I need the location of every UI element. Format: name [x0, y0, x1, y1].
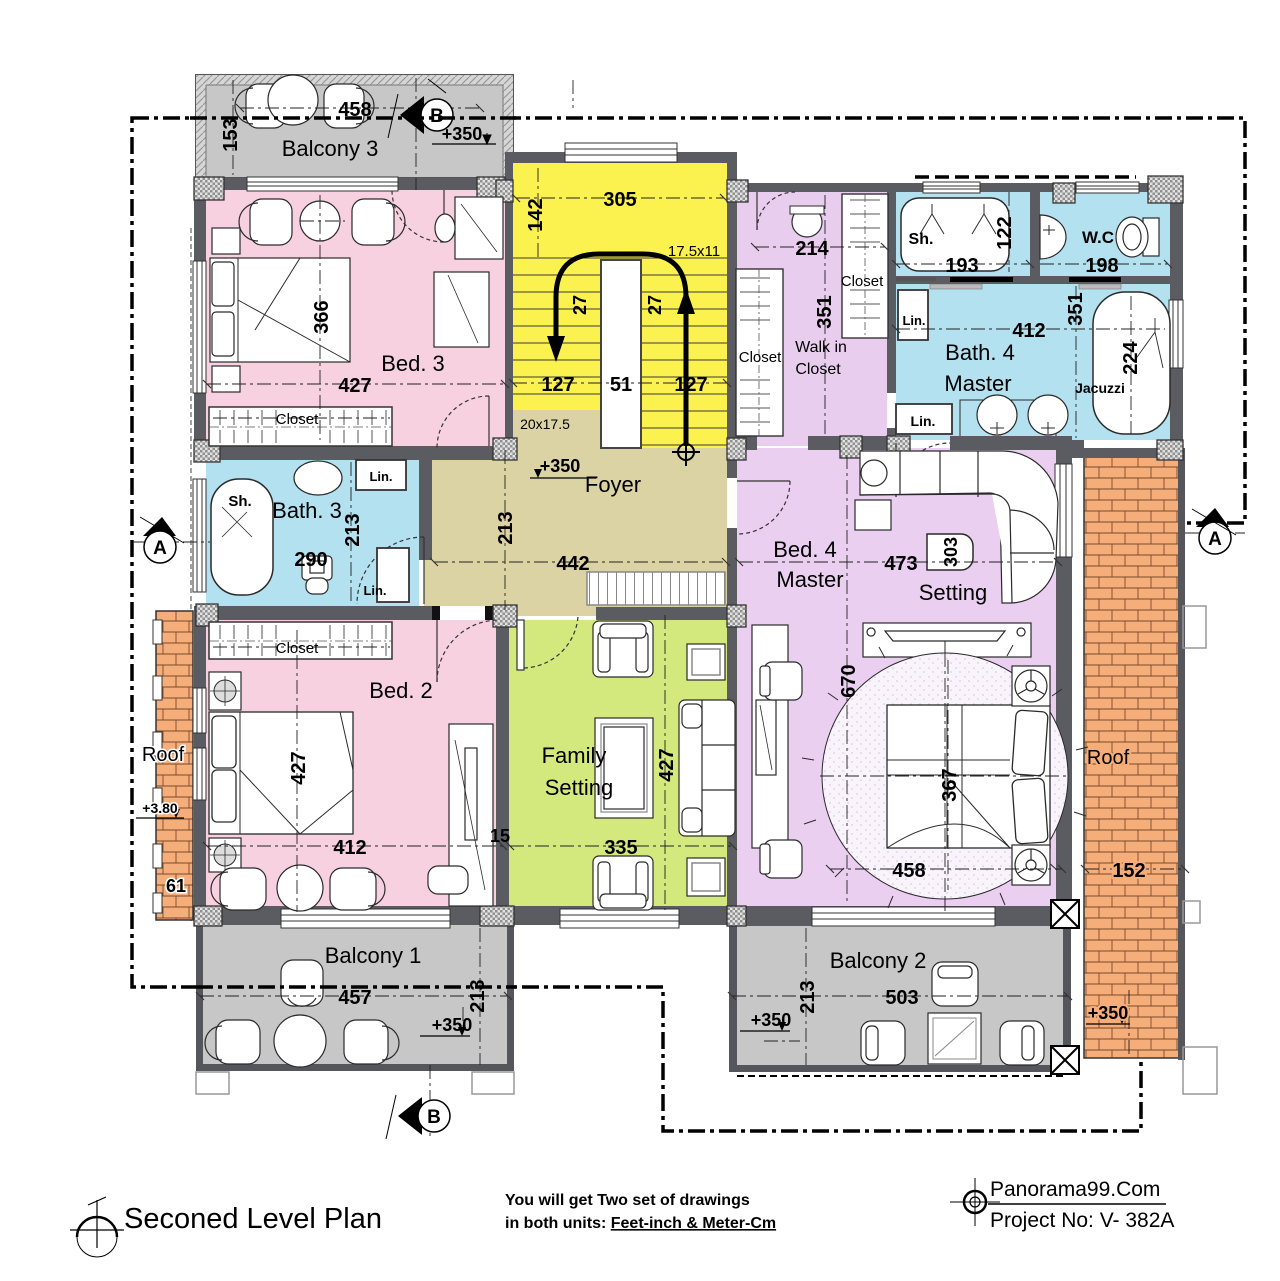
svg-text:Bath. 4: Bath. 4: [945, 340, 1015, 365]
svg-text:Lin.: Lin.: [911, 413, 936, 429]
svg-text:Closet: Closet: [739, 349, 782, 366]
svg-text:127: 127: [674, 374, 707, 396]
svg-text:152: 152: [1112, 860, 1145, 882]
svg-text:Sh.: Sh.: [909, 231, 934, 248]
svg-text:Balcony 2: Balcony 2: [830, 948, 927, 973]
svg-text:213: 213: [495, 511, 517, 544]
svg-text:20x17.5: 20x17.5: [520, 416, 570, 432]
svg-text:+350: +350: [442, 124, 483, 144]
svg-text:503: 503: [885, 987, 918, 1009]
svg-text:Balcony 3: Balcony 3: [282, 136, 379, 161]
svg-text:Project No: V- 382A: Project No: V- 382A: [990, 1209, 1174, 1232]
svg-text:You will get Two set of drawin: You will get Two set of drawings: [505, 1192, 750, 1209]
svg-text:224: 224: [1120, 340, 1142, 374]
svg-text:367: 367: [939, 768, 961, 801]
svg-text:Balcony 1: Balcony 1: [325, 943, 422, 968]
svg-text:+350: +350: [432, 1015, 473, 1035]
svg-text:193: 193: [945, 255, 978, 277]
svg-text:457: 457: [338, 987, 371, 1009]
svg-text:351: 351: [814, 295, 836, 328]
svg-text:Seconed Level Plan: Seconed Level Plan: [124, 1203, 382, 1235]
svg-text:412: 412: [1012, 320, 1045, 342]
svg-text:+350: +350: [751, 1010, 792, 1030]
svg-text:Lin.: Lin.: [363, 583, 386, 598]
svg-text:335: 335: [604, 837, 637, 859]
svg-text:142: 142: [525, 198, 547, 231]
svg-text:670: 670: [838, 664, 860, 697]
svg-text:303: 303: [941, 537, 961, 567]
svg-text:A: A: [1208, 529, 1222, 550]
svg-text:51: 51: [610, 374, 632, 396]
svg-text:351: 351: [1065, 292, 1087, 325]
svg-text:W.C: W.C: [1082, 228, 1114, 247]
svg-text:Master: Master: [776, 567, 843, 592]
svg-text:A: A: [153, 538, 167, 559]
svg-text:214: 214: [795, 238, 829, 260]
svg-text:in both units: Feet-inch & Met: in both units: Feet-inch & Meter-Cm: [505, 1215, 776, 1232]
svg-text:+3.80: +3.80: [142, 800, 178, 816]
svg-text:27: 27: [570, 295, 590, 315]
svg-text:+350: +350: [540, 456, 581, 476]
svg-text:213: 213: [467, 979, 489, 1012]
svg-text:Closet: Closet: [841, 273, 884, 290]
svg-text:Bed. 2: Bed. 2: [369, 678, 433, 703]
svg-text:+350: +350: [1088, 1003, 1129, 1023]
svg-text:198: 198: [1085, 255, 1118, 277]
svg-text:213: 213: [342, 513, 364, 546]
svg-text:366: 366: [311, 300, 333, 333]
svg-text:122: 122: [994, 216, 1016, 249]
svg-text:153: 153: [220, 118, 242, 151]
svg-text:Closet: Closet: [276, 411, 319, 428]
svg-text:Lin.: Lin.: [369, 469, 392, 484]
svg-text:15: 15: [490, 826, 510, 846]
svg-text:Family: Family: [542, 743, 607, 768]
svg-text:Jacuzzi: Jacuzzi: [1075, 380, 1125, 396]
svg-text:27: 27: [645, 295, 665, 315]
svg-text:290: 290: [294, 549, 327, 571]
svg-text:61: 61: [166, 876, 186, 896]
svg-text:Roof: Roof: [142, 744, 185, 766]
svg-text:B: B: [427, 1107, 441, 1128]
svg-text:Closet: Closet: [795, 361, 841, 378]
svg-text:Walk in: Walk in: [795, 339, 847, 356]
svg-text:Lin.: Lin.: [902, 313, 925, 328]
svg-text:427: 427: [288, 751, 310, 784]
svg-text:127: 127: [541, 374, 574, 396]
svg-text:Master: Master: [944, 371, 1011, 396]
svg-text:473: 473: [884, 553, 917, 575]
svg-text:Setting: Setting: [545, 775, 614, 800]
svg-text:Sh.: Sh.: [228, 493, 251, 510]
svg-text:412: 412: [333, 837, 366, 859]
svg-text:305: 305: [603, 189, 636, 211]
svg-text:458: 458: [892, 860, 925, 882]
svg-text:Roof: Roof: [1087, 747, 1130, 769]
svg-text:Foyer: Foyer: [585, 472, 641, 497]
svg-text:Bath. 3: Bath. 3: [272, 498, 342, 523]
svg-text:Bed. 3: Bed. 3: [381, 351, 445, 376]
svg-text:442: 442: [556, 553, 589, 575]
svg-text:Panorama99.Com: Panorama99.Com: [990, 1178, 1160, 1201]
svg-text:213: 213: [797, 980, 819, 1013]
svg-text:427: 427: [656, 748, 678, 781]
svg-text:17.5x11: 17.5x11: [668, 243, 720, 260]
svg-text:427: 427: [338, 375, 371, 397]
svg-text:Setting: Setting: [919, 580, 988, 605]
svg-text:Closet: Closet: [276, 640, 319, 657]
svg-text:Bed. 4: Bed. 4: [773, 537, 837, 562]
